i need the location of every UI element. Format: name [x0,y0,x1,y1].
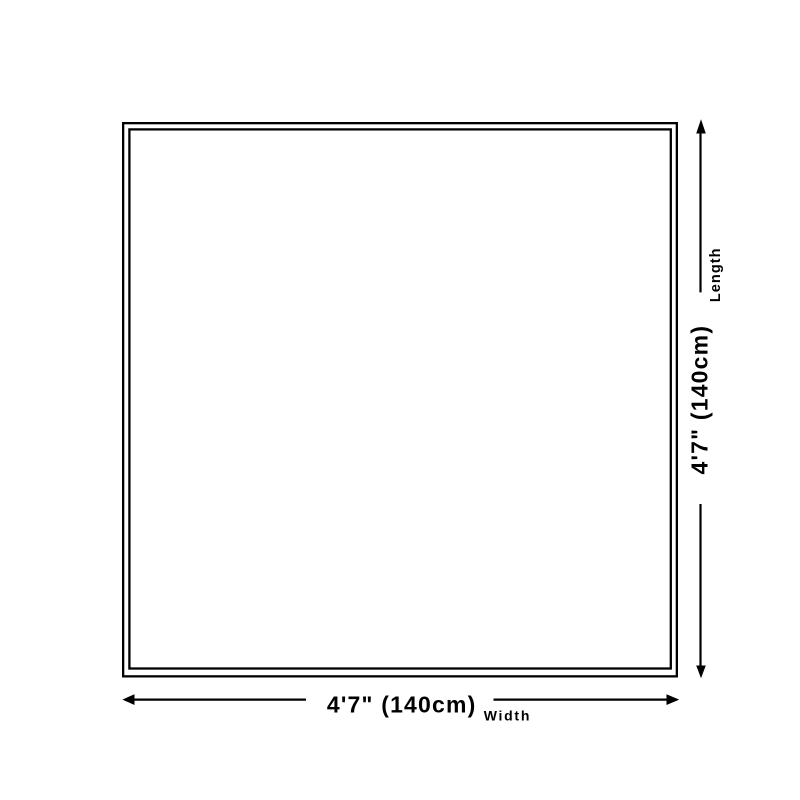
svg-text:4'7" (140cm): 4'7" (140cm) [327,691,475,717]
svg-text:Width: Width [484,708,530,724]
svg-text:Length: Length [708,248,724,302]
svg-text:4'7" (140cm): 4'7" (140cm) [686,326,712,475]
